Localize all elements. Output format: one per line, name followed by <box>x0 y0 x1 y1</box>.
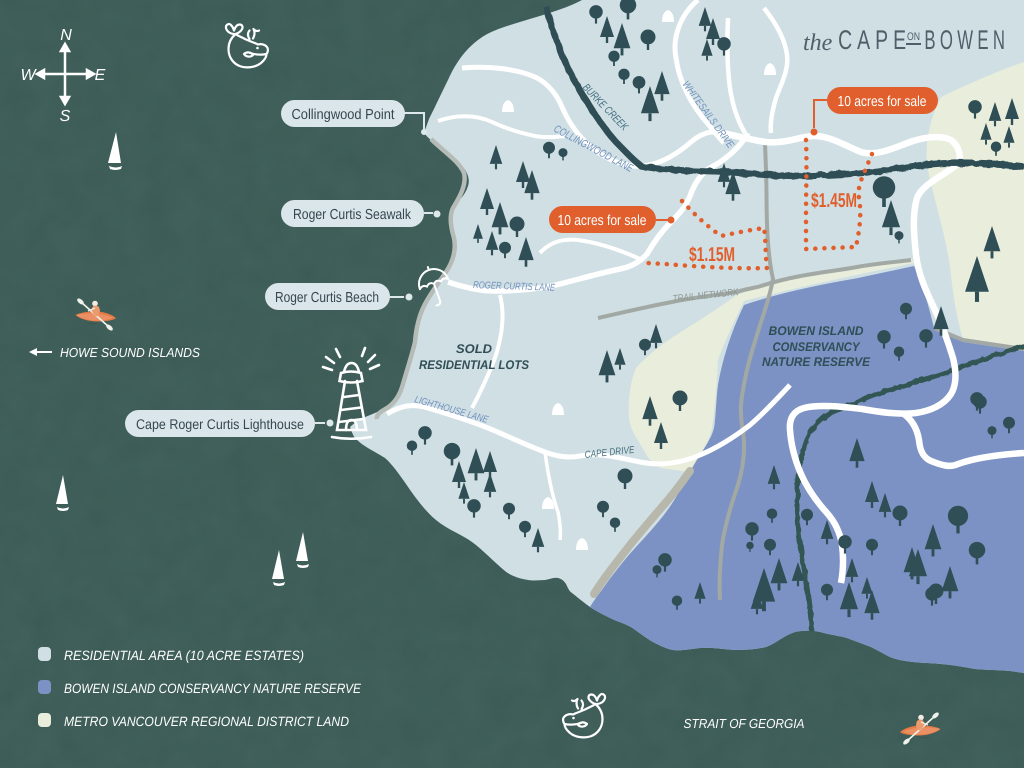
svg-text:METRO VANCOUVER REGIONAL DISTR: METRO VANCOUVER REGIONAL DISTRICT LAND <box>64 714 349 729</box>
svg-text:RESIDENTIAL AREA (10 ACRE ESTA: RESIDENTIAL AREA (10 ACRE ESTATES) <box>64 648 304 663</box>
svg-text:$1.45M: $1.45M <box>811 190 857 212</box>
svg-text:CONSERVANCY: CONSERVANCY <box>773 340 861 354</box>
svg-text:Cape Roger Curtis Lighthouse: Cape Roger Curtis Lighthouse <box>136 416 304 432</box>
svg-text:E: E <box>95 67 106 84</box>
svg-text:ON: ON <box>907 31 920 43</box>
svg-text:Collingwood Point: Collingwood Point <box>292 107 395 123</box>
svg-text:Roger Curtis Seawalk: Roger Curtis Seawalk <box>293 207 412 223</box>
svg-text:BOWEN: BOWEN <box>924 25 1009 55</box>
svg-text:NATURE RESERVE: NATURE RESERVE <box>762 355 871 369</box>
svg-text:RESIDENTIAL LOTS: RESIDENTIAL LOTS <box>419 358 530 372</box>
svg-text:CAPE: CAPE <box>838 25 911 55</box>
svg-text:W: W <box>20 67 37 84</box>
svg-text:10 acres for sale: 10 acres for sale <box>558 213 647 229</box>
svg-text:S: S <box>60 108 71 125</box>
svg-text:HOWE SOUND ISLANDS: HOWE SOUND ISLANDS <box>60 345 200 360</box>
svg-text:STRAIT OF GEORGIA: STRAIT OF GEORGIA <box>684 716 805 731</box>
svg-text:the: the <box>803 30 833 56</box>
svg-text:SOLD: SOLD <box>456 342 492 356</box>
svg-text:N: N <box>60 27 72 44</box>
svg-text:10 acres for sale: 10 acres for sale <box>838 94 927 110</box>
svg-text:BOWEN ISLAND CONSERVANCY NATUR: BOWEN ISLAND CONSERVANCY NATURE RESERVE <box>64 681 362 696</box>
svg-text:$1.15M: $1.15M <box>689 244 735 266</box>
svg-text:BOWEN ISLAND: BOWEN ISLAND <box>769 324 864 338</box>
svg-text:Roger Curtis Beach: Roger Curtis Beach <box>275 290 379 306</box>
